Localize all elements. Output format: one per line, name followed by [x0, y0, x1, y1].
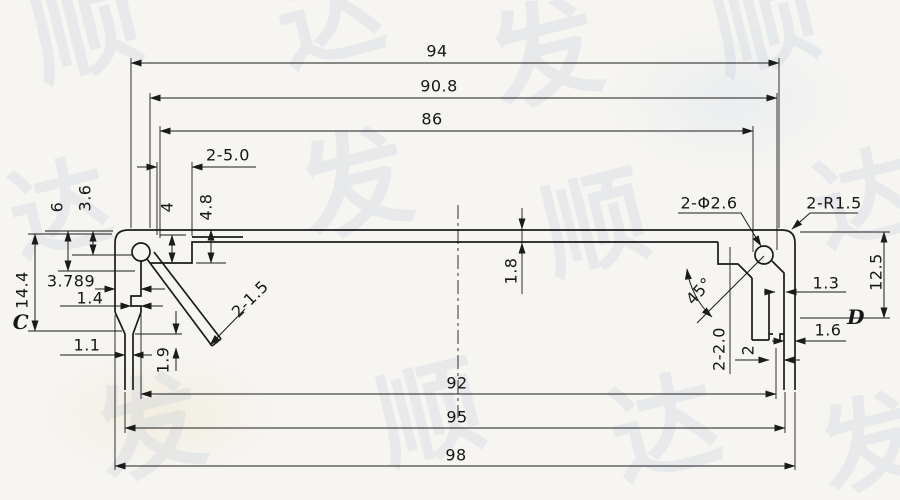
dim-86: 86	[421, 110, 442, 129]
dimension-lines	[35, 63, 884, 466]
dim-90-8: 90.8	[420, 77, 458, 96]
section-marker-d: D	[847, 305, 865, 329]
dim-98: 98	[445, 446, 466, 465]
dim-4-8: 4.8	[197, 194, 216, 221]
dim-1-1: 1.1	[74, 336, 101, 355]
dim-2-phi-2-6: 2-Φ2.6	[681, 194, 738, 213]
dim-14-4: 14.4	[13, 271, 32, 309]
dim-94: 94	[426, 42, 447, 61]
dim-2-5-0: 2-5.0	[206, 146, 250, 165]
dim-2-r1-5: 2-R1.5	[806, 194, 862, 213]
dim-1-6: 1.6	[815, 321, 842, 340]
dim-3-6: 3.6	[76, 185, 95, 212]
profile-outline	[115, 230, 795, 390]
dim-1-4: 1.4	[77, 289, 104, 308]
dim-4: 4	[158, 202, 177, 213]
dim-95: 95	[446, 408, 467, 427]
section-marker-c: C	[13, 310, 29, 334]
dim-12-5: 12.5	[867, 253, 886, 291]
dim-2-2-0: 2-2.0	[710, 327, 729, 371]
dim-2: 2	[739, 345, 758, 356]
dim-1-9: 1.9	[154, 347, 173, 374]
engineering-drawing: 顺 达 发 顺 达 发 顺 达 发 顺 达 发	[0, 0, 900, 500]
dim-1-3: 1.3	[813, 274, 840, 293]
dim-6: 6	[48, 202, 67, 213]
dim-1-8: 1.8	[502, 258, 521, 285]
dim-92: 92	[446, 374, 467, 393]
